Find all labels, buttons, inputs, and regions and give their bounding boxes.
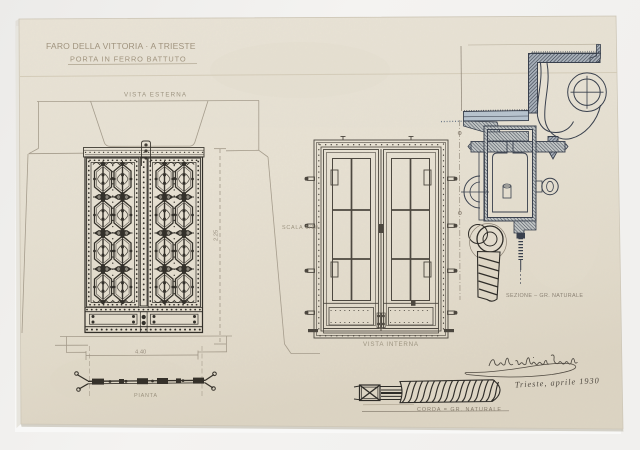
svg-text:4.40: 4.40: [135, 350, 146, 356]
svg-text:VISTA INTERNA: VISTA INTERNA: [363, 341, 419, 348]
svg-text:CORDA = GR. NATURALE: CORDA = GR. NATURALE: [417, 407, 501, 413]
svg-text:SEZIONE – GR. NATURALE: SEZIONE – GR. NATURALE: [506, 293, 583, 299]
svg-text:2.25: 2.25: [214, 230, 220, 241]
svg-text:SCALA 1/10: SCALA 1/10: [282, 225, 318, 231]
svg-text:VISTA ESTERNA: VISTA ESTERNA: [124, 92, 187, 99]
svg-text:PORTA IN FERRO BATTUTO: PORTA IN FERRO BATTUTO: [70, 55, 186, 64]
svg-text:PIANTA: PIANTA: [134, 393, 157, 399]
svg-text:FARO DELLA VITTORIA · A TRIEST: FARO DELLA VITTORIA · A TRIESTE: [46, 41, 196, 51]
